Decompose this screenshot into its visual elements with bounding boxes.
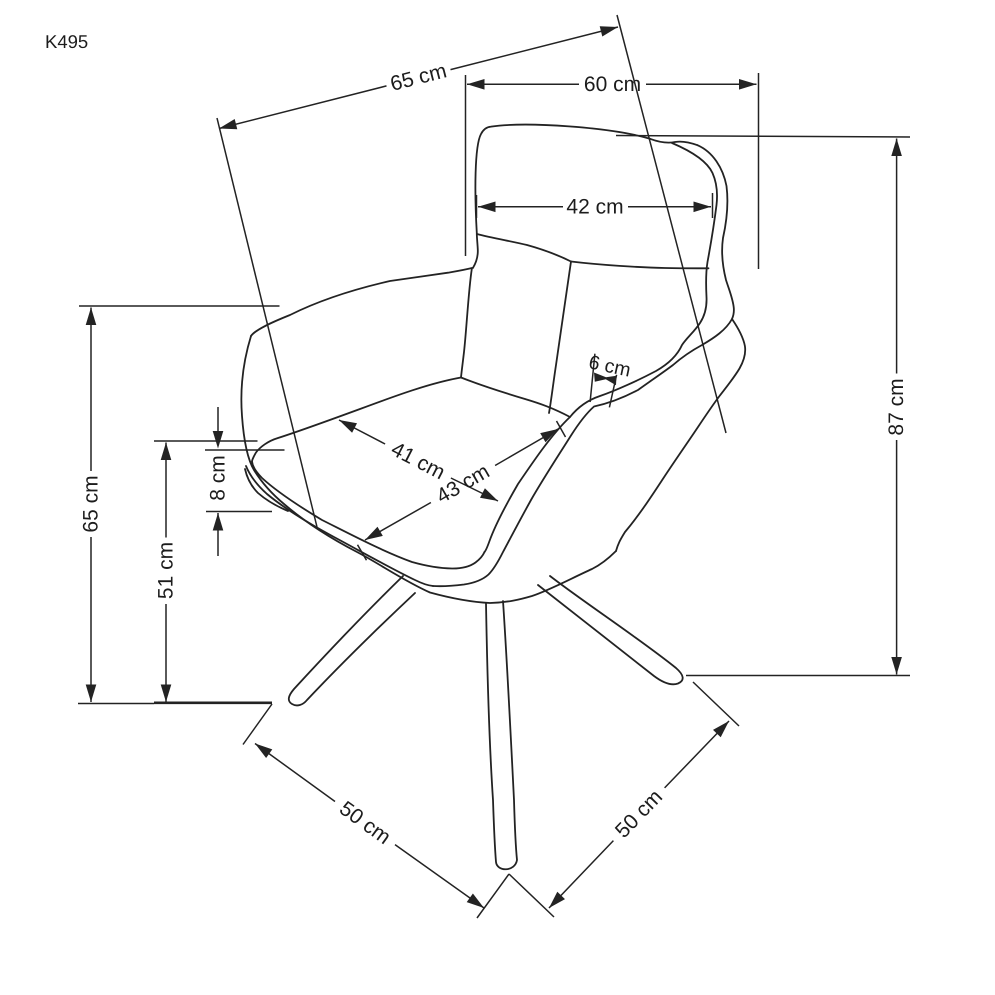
svg-text:K495: K495 [45, 31, 88, 52]
svg-text:87 cm: 87 cm [885, 378, 908, 435]
svg-text:60 cm: 60 cm [584, 73, 641, 96]
svg-text:8 cm: 8 cm [207, 455, 230, 501]
svg-text:65 cm: 65 cm [80, 475, 103, 532]
svg-text:51 cm: 51 cm [155, 542, 178, 599]
svg-text:42 cm: 42 cm [566, 195, 623, 218]
